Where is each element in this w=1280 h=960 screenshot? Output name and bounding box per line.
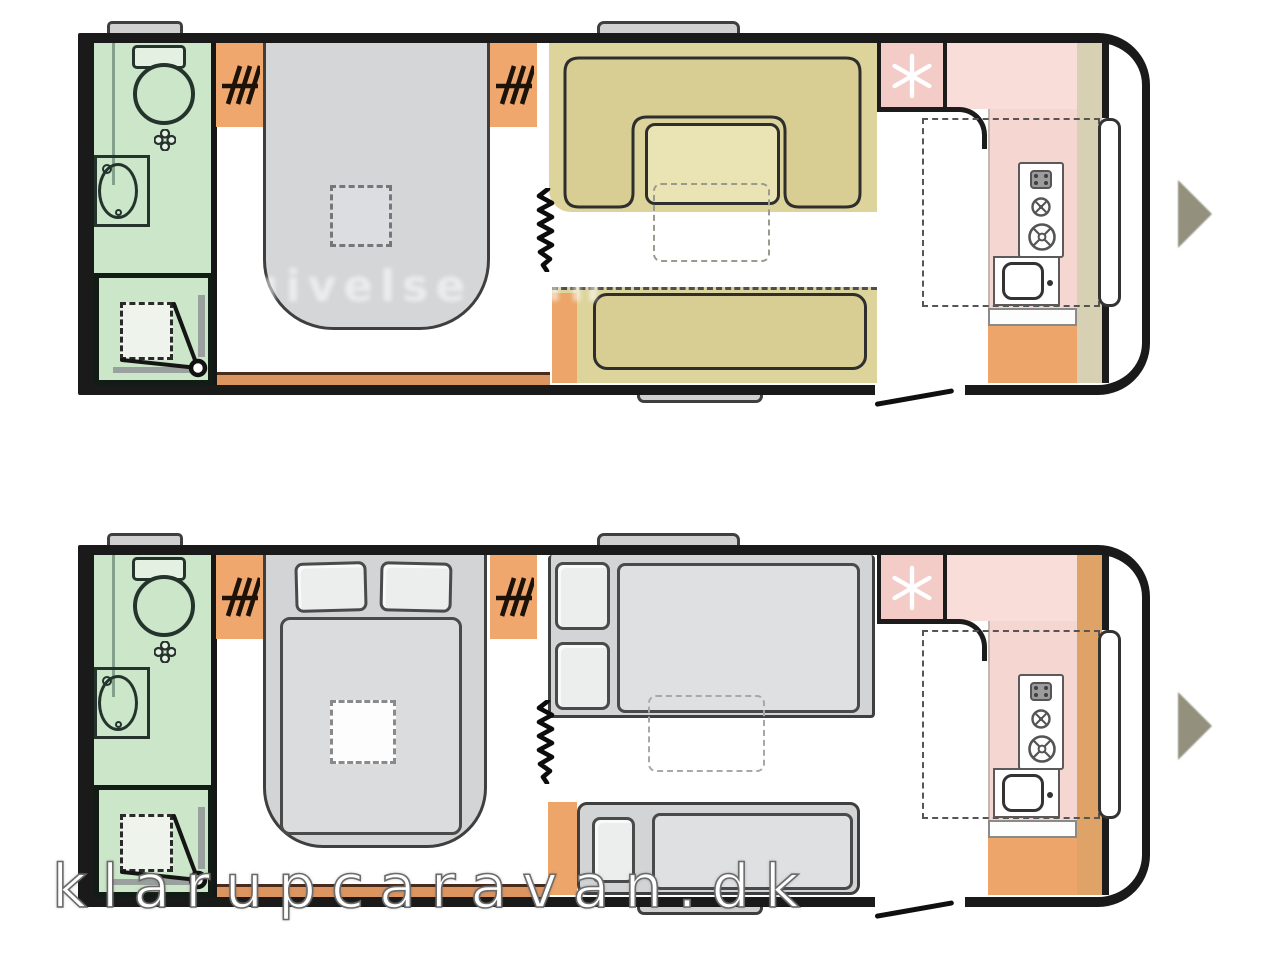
wardrobe-right — [490, 43, 537, 127]
pillow — [294, 561, 367, 613]
kitchen-cabinet — [988, 326, 1077, 383]
kitchen-cabinet — [988, 838, 1077, 895]
wardrobe-right — [490, 555, 537, 639]
snowflake-icon — [889, 565, 935, 611]
front-wall-upper — [1102, 43, 1109, 118]
fridge — [877, 555, 947, 621]
faucet-dot — [1047, 280, 1053, 286]
faint-watermark: givelse kun — [247, 261, 607, 312]
sink-icon — [1002, 262, 1044, 300]
wardrobe-left — [216, 555, 263, 639]
front-wall-lower — [1102, 817, 1109, 895]
caravan-floorplan-image: givelse kun — [0, 0, 1280, 960]
drain-icon — [115, 721, 122, 728]
tap-icon — [102, 164, 112, 174]
pillow — [555, 642, 610, 710]
floor-heating-strip — [217, 372, 550, 385]
wardrobe-rail-icon — [494, 60, 534, 110]
curtain-zigzag-icon — [535, 188, 557, 272]
wardrobe-left — [216, 43, 263, 127]
faucet-dot — [1047, 792, 1053, 798]
snowflake-icon — [889, 53, 935, 99]
front-wall-upper — [1102, 555, 1109, 630]
wardrobe-rail-icon — [494, 572, 534, 622]
fridge — [877, 43, 947, 109]
site-watermark: klarupcaravan.dk — [52, 852, 814, 922]
flush-flower-icon — [154, 129, 176, 151]
front-window — [1098, 118, 1121, 307]
toilet-icon — [133, 575, 195, 637]
kitchen-drawer — [988, 820, 1077, 838]
tap-icon — [102, 676, 112, 686]
double-bed-mattress — [617, 563, 860, 713]
table-alt-position-dashed — [653, 183, 770, 262]
drain-icon — [115, 209, 122, 216]
next-arrow-icon[interactable] — [1178, 180, 1212, 248]
side-bench — [593, 293, 867, 370]
flush-flower-icon — [154, 641, 176, 663]
front-wall-lower — [1102, 305, 1109, 383]
next-arrow-icon[interactable] — [1178, 692, 1212, 760]
pillow — [555, 562, 610, 630]
roof-vent-dashed — [330, 700, 396, 764]
curtain-zigzag-icon — [535, 700, 557, 784]
wardrobe-rail-icon — [220, 572, 260, 622]
pillow — [379, 561, 452, 612]
toilet-icon — [133, 63, 195, 125]
sink-icon — [1002, 774, 1044, 812]
front-window — [1098, 630, 1121, 819]
shower-icon — [118, 298, 210, 380]
wardrobe-rail-icon — [220, 60, 260, 110]
kitchen-drawer — [988, 308, 1077, 326]
roof-vent-dashed — [330, 185, 392, 247]
floorplan-day: givelse kun — [78, 33, 1150, 395]
stove-burner-icon — [1018, 162, 1064, 258]
stove-burner-icon — [1018, 674, 1064, 770]
stowed-table-dashed — [648, 695, 765, 772]
